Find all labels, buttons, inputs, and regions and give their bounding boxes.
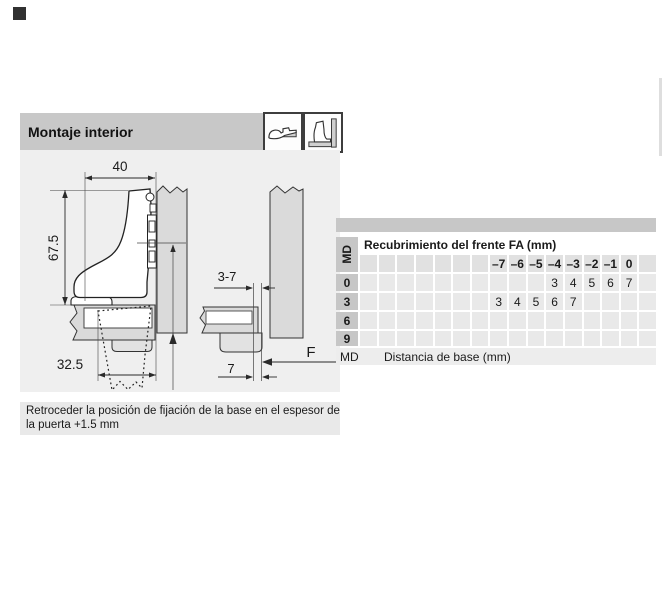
table-cell: [416, 293, 433, 310]
table-cell: [472, 312, 489, 329]
table-cell: 6: [602, 274, 619, 291]
table-cell: [472, 293, 489, 310]
table-cell: [435, 293, 452, 310]
table-cell: [472, 331, 489, 346]
table-cell: [639, 274, 656, 291]
table-cell: [546, 331, 563, 346]
dim-overlay-label: F: [306, 344, 315, 361]
drawing-caption: Retroceder la posición de fijación de la…: [20, 402, 340, 435]
table-cell: 7: [621, 274, 638, 291]
table-cell: [584, 331, 601, 346]
table-col-header: [639, 255, 656, 272]
right-cabinet-board: [270, 186, 303, 338]
table-col-header: –5: [528, 255, 545, 272]
table-col-header: –7: [490, 255, 507, 272]
table-cell: [565, 331, 582, 346]
table-row-label: 3: [336, 293, 358, 310]
table-cell: [360, 274, 377, 291]
overlay-hinge-glyph: [267, 117, 299, 149]
table-cell: [416, 274, 433, 291]
overlay-hinge-icon: [263, 112, 303, 153]
table-cell: [584, 312, 601, 329]
table-cell: [621, 312, 638, 329]
right-cup-boss: [220, 333, 262, 352]
table-title: Recubrimiento del frente FA (mm): [360, 237, 656, 253]
table-col-header: [379, 255, 396, 272]
table-cell: 4: [509, 293, 526, 310]
dim-door-gap-label: 3-7: [218, 269, 237, 284]
table-cell: [509, 274, 526, 291]
table-col-header: –6: [509, 255, 526, 272]
table-cell: [416, 312, 433, 329]
table-row-label: 0: [336, 274, 358, 291]
table-col-header: –4: [546, 255, 563, 272]
table-cell: [528, 312, 545, 329]
table-row-label: 6: [336, 312, 358, 329]
section-title: Montaje interior: [20, 124, 133, 140]
table-cell: [379, 312, 396, 329]
table-cell: [528, 331, 545, 346]
footer-md-abbr: MD: [336, 350, 366, 364]
table-col-header: –1: [602, 255, 619, 272]
table-cell: [379, 331, 396, 346]
table-cell: [528, 274, 545, 291]
table-col-header: 0: [621, 255, 638, 272]
table-cell: [546, 312, 563, 329]
caption-line-2: la puerta +1.5 mm: [26, 418, 340, 432]
table-cell: [565, 312, 582, 329]
dim-edge-distance-label: 7: [227, 361, 234, 376]
table-cell: [490, 312, 507, 329]
table-cell: [416, 331, 433, 346]
arm-clip: [146, 193, 154, 201]
caption-line-1: Retroceder la posición de fijación de la…: [26, 404, 340, 418]
table-cell: [397, 274, 414, 291]
table-cell: [509, 331, 526, 346]
table-col-header: –2: [584, 255, 601, 272]
table-cell: [397, 312, 414, 329]
catalog-page: Montaje interior: [0, 0, 662, 590]
table-cell: [435, 312, 452, 329]
table-cell: [435, 331, 452, 346]
table-cell: [509, 312, 526, 329]
table-col-header: [435, 255, 452, 272]
table-col-header: [453, 255, 470, 272]
table-col-header: [360, 255, 377, 272]
right-cup-recess: [206, 311, 252, 324]
table-footer: MD Distancia de base (mm): [336, 348, 656, 365]
table-cell: [639, 293, 656, 310]
table-cell: [602, 331, 619, 346]
table-cell: [472, 274, 489, 291]
table-col-header: –3: [565, 255, 582, 272]
page-corner-marker: [13, 7, 26, 20]
dim-base-setback-label: 32.5: [57, 357, 83, 372]
dim-top-width-label: 40: [112, 159, 127, 174]
table-cell: [602, 312, 619, 329]
table-cell: [453, 293, 470, 310]
table-cell: 6: [546, 293, 563, 310]
footer-note: Distancia de base (mm): [384, 350, 511, 364]
table-col-header: [472, 255, 489, 272]
table-cell: [639, 312, 656, 329]
technical-drawing: 40 67.5 32.5 3-7: [20, 150, 340, 400]
fa-md-table: MD Recubrimiento del frente FA (mm) –7–6…: [336, 237, 656, 346]
table-cell: 5: [584, 274, 601, 291]
table-cell: [639, 331, 656, 346]
table-cell: [360, 331, 377, 346]
table-cell: [397, 331, 414, 346]
table-cell: [621, 331, 638, 346]
inset-hinge-icon: [303, 112, 343, 153]
inset-hinge-glyph: [307, 117, 339, 149]
table-cell: [379, 293, 396, 310]
left-door-board: [157, 186, 187, 333]
table-cell: 4: [565, 274, 582, 291]
table-cell: [397, 293, 414, 310]
table-cell: [360, 312, 377, 329]
cup-recess: [84, 308, 152, 328]
table-row-label: 9: [336, 331, 358, 346]
table-cell: 3: [546, 274, 563, 291]
table-col-header: [397, 255, 414, 272]
table-cell: [360, 293, 377, 310]
table-top-bar: [336, 218, 656, 232]
table-cell: 7: [565, 293, 582, 310]
table-cell: [435, 274, 452, 291]
table-cell: [602, 293, 619, 310]
table-cell: 3: [490, 293, 507, 310]
table-cell: [453, 331, 470, 346]
table-cell: [490, 331, 507, 346]
dim-side-height-label: 67.5: [46, 235, 61, 261]
table-cell: [584, 293, 601, 310]
table-cell: 5: [528, 293, 545, 310]
table-cell: [621, 293, 638, 310]
table-cell: [379, 274, 396, 291]
arm-step: [150, 204, 156, 212]
table-col-header: [416, 255, 433, 272]
table-cell: [453, 274, 470, 291]
table-cell: [490, 274, 507, 291]
table-corner-md-label: MD: [336, 237, 358, 272]
table-cell: [453, 312, 470, 329]
